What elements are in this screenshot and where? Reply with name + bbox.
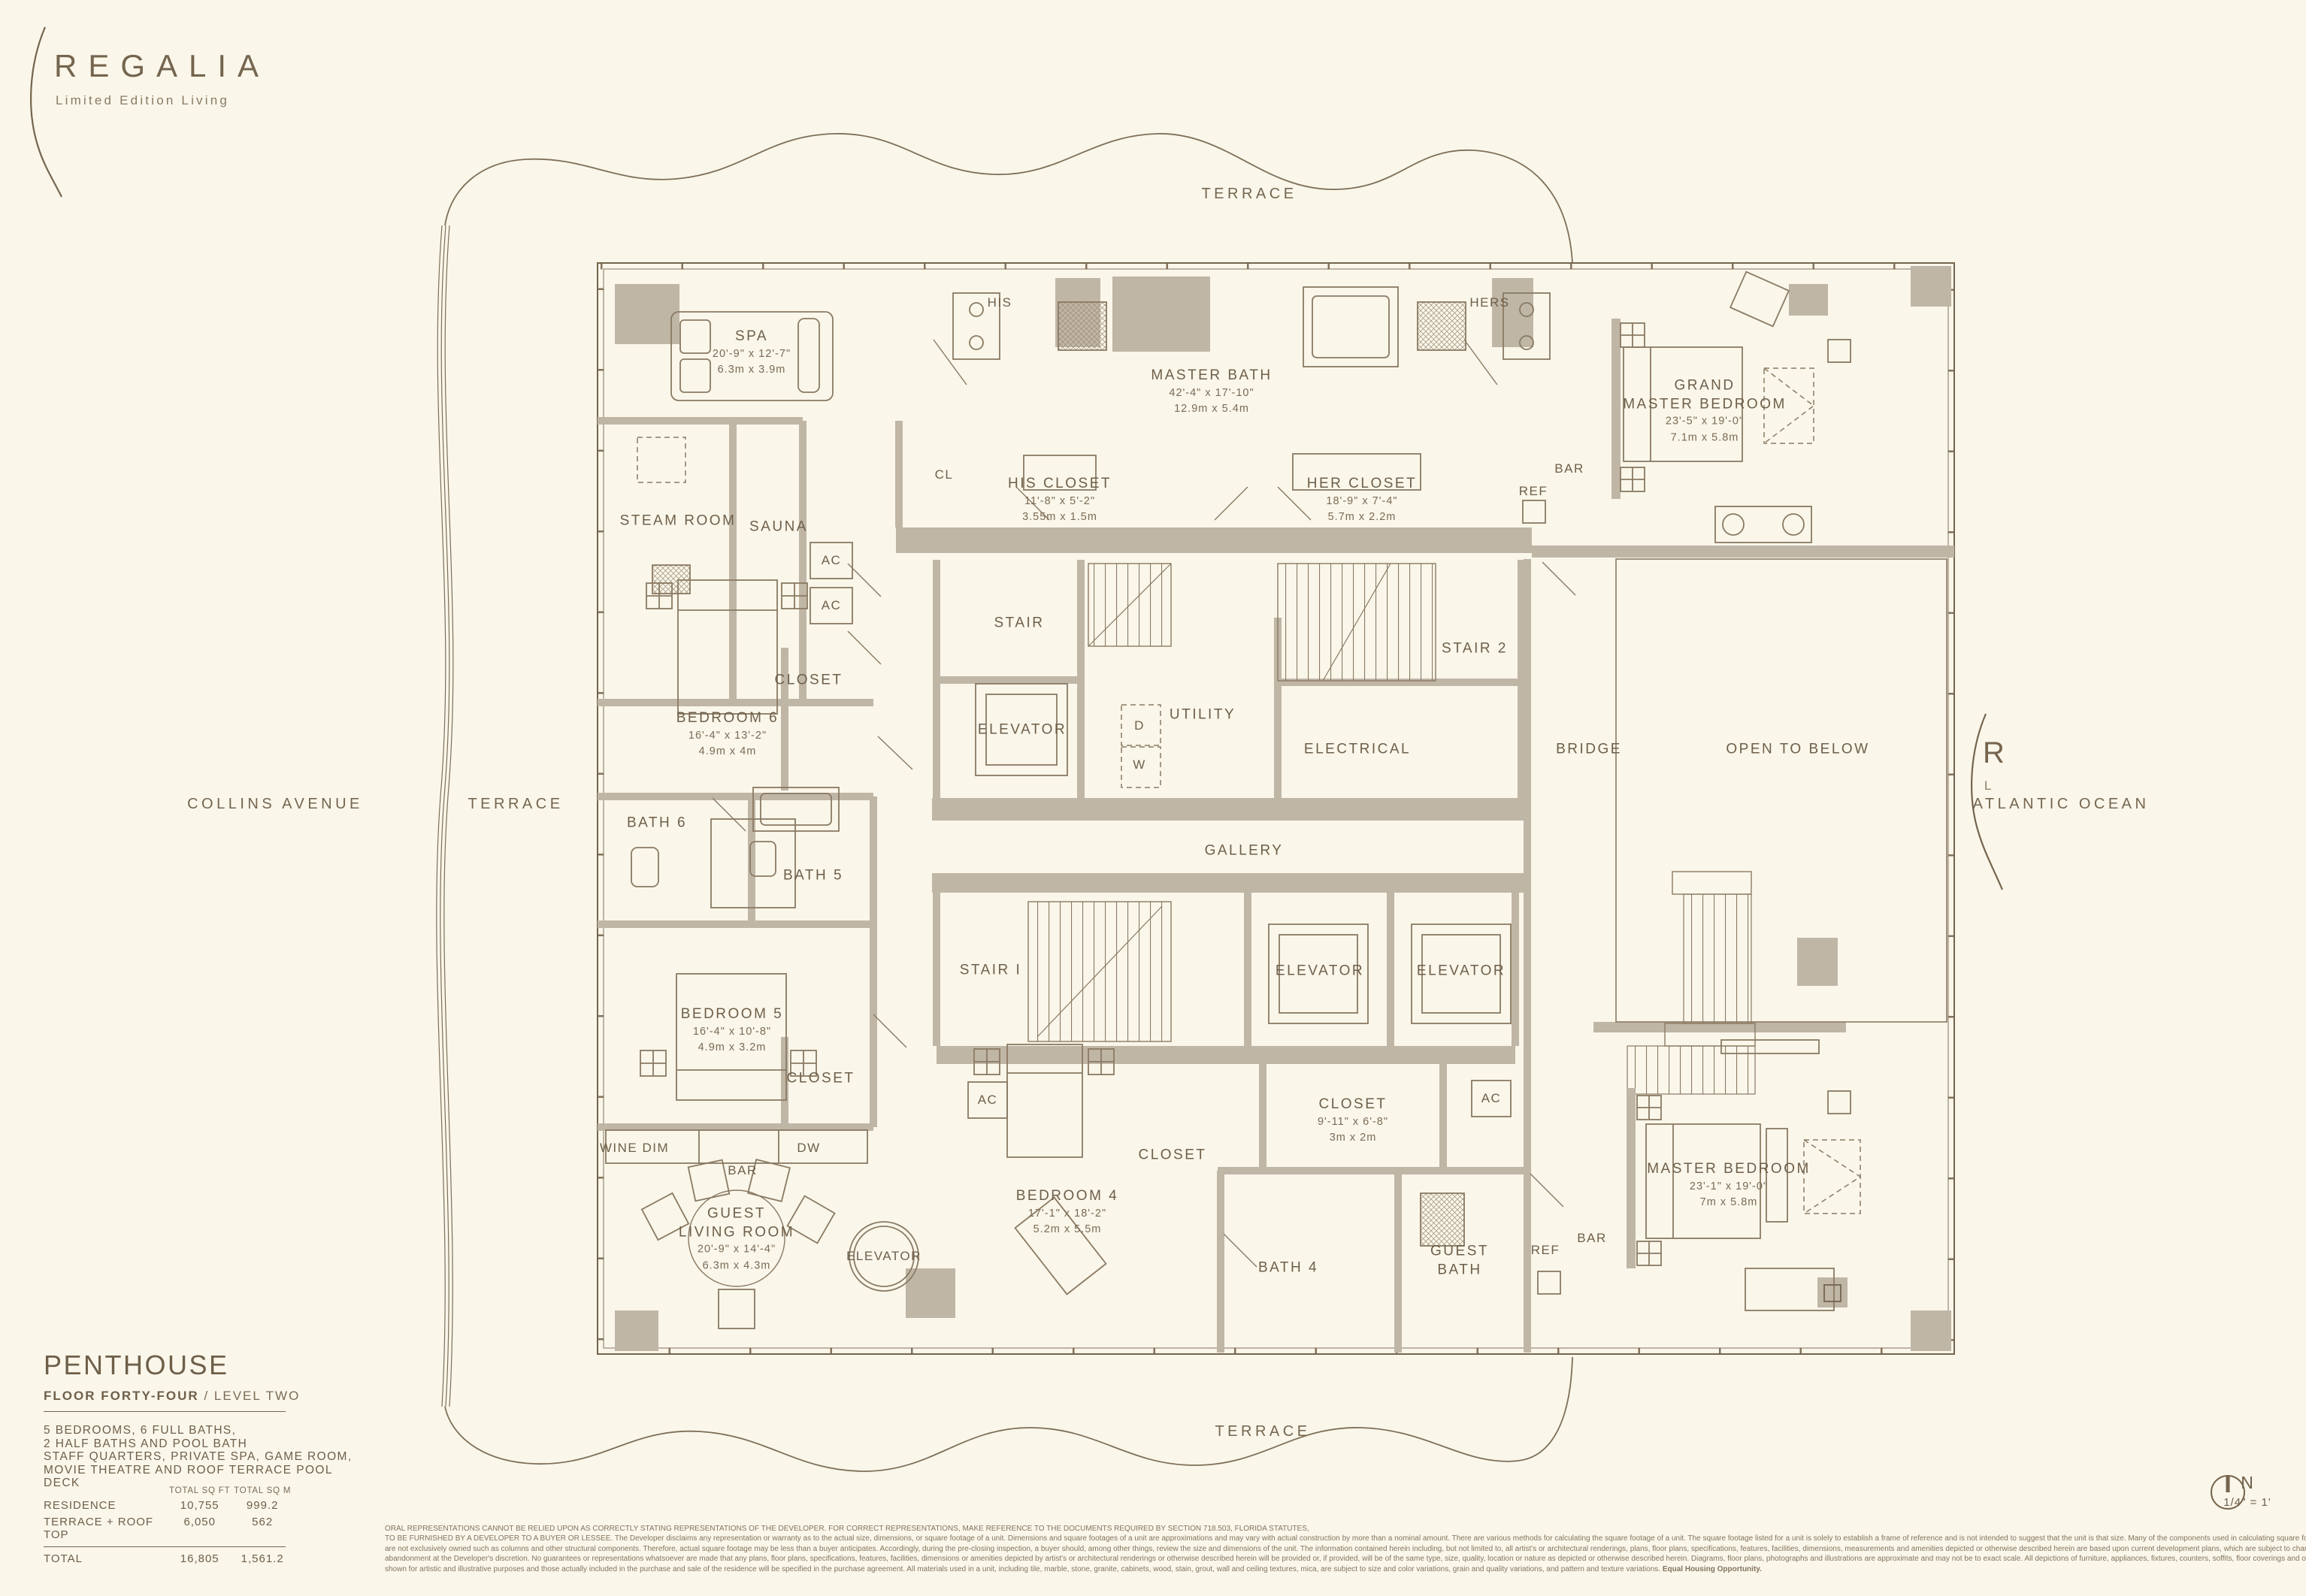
label-text: GUEST <box>1430 1242 1489 1261</box>
label-text: UTILITY <box>1170 706 1236 725</box>
label-dimension: 4.9m x 3.2m <box>681 1040 784 1056</box>
level-label: LEVEL TWO <box>214 1389 300 1403</box>
north-compass: N 1/4" = 1' <box>2208 1473 2286 1509</box>
label-master-bath: MASTER BATH42'-4" x 17'-10"12.9m x 5.4m <box>1151 367 1272 418</box>
brand-tagline-partial: L <box>1984 778 1993 793</box>
label-ac-2: AC <box>822 597 842 614</box>
label-dimension: 7m x 5.8m <box>1647 1195 1811 1211</box>
label-dimension: 4.9m x 4m <box>676 744 779 760</box>
label-guest-living-room: GUESTLIVING ROOM20'-9" x 14'-4"6.3m x 4.… <box>679 1205 794 1275</box>
brand-logo: REGALIA Limited Edition Living <box>20 21 290 201</box>
label-dimension: 3.55m x 1.5m <box>1008 509 1112 526</box>
label-elevator-lower-1: ELEVATOR <box>1276 963 1364 981</box>
description-line: 5 BEDROOMS, 6 FULL BATHS, <box>44 1424 359 1437</box>
label-text: ELEVATOR <box>1417 963 1506 981</box>
unit-description: 5 BEDROOMS, 6 FULL BATHS, 2 HALF BATHS A… <box>44 1424 359 1490</box>
label-elevator-guest: ELEVATOR <box>846 1248 921 1265</box>
label-ac-1: AC <box>822 552 842 569</box>
label-text: REF <box>1531 1242 1560 1259</box>
label-dimension: 5.7m x 2.2m <box>1307 509 1417 526</box>
label-electrical: ELECTRICAL <box>1304 741 1411 760</box>
floor-label: FLOOR FORTY-FOUR <box>44 1389 199 1403</box>
label-text: HIS <box>988 295 1012 311</box>
label-dimension: 18'-9" x 7'-4" <box>1307 494 1417 510</box>
unit-info-block: PENTHOUSE FLOOR FORTY-FOUR / LEVEL TWO 5… <box>44 1350 359 1490</box>
label-his: HIS <box>988 295 1012 311</box>
label-text: MASTER BATH <box>1151 367 1272 385</box>
label-dimension: 7.1m x 5.8m <box>1623 431 1787 447</box>
label-text: CLOSET <box>786 1070 855 1089</box>
label-text: MASTER BEDROOM <box>1647 1160 1811 1179</box>
subtitle-separator: / <box>204 1389 209 1403</box>
label-wine-dim: WINE DIM <box>600 1140 669 1156</box>
label-dimension: 42'-4" x 17'-10" <box>1151 385 1272 402</box>
label-text: AC <box>978 1092 998 1108</box>
label-text: BATH 5 <box>783 867 843 886</box>
label-utility: UTILITY <box>1170 706 1236 725</box>
label-stair: STAIR <box>994 615 1044 633</box>
label-text: W <box>1133 757 1146 773</box>
equal-housing-note: Equal Housing Opportunity. <box>1663 1565 1762 1573</box>
label-text: STAIR <box>994 615 1044 633</box>
row-sqm: 562 <box>233 1516 292 1528</box>
disclaimer-line: ORAL REPRESENTATIONS CANNOT BE RELIED UP… <box>385 1524 1971 1534</box>
label-text: BAR <box>728 1162 757 1179</box>
header-total-sqm: TOTAL SQ M <box>233 1486 292 1495</box>
label-hers: HERS <box>1469 295 1509 311</box>
label-text: WINE DIM <box>600 1140 669 1156</box>
total-sqft: 16,805 <box>166 1552 233 1565</box>
table-total-row: TOTAL 16,805 1,561.2 <box>44 1552 292 1565</box>
disclaimer-line: are not exclusively owned such as column… <box>385 1544 1971 1554</box>
label-bar-west: BAR <box>728 1162 757 1179</box>
label-text: MASTER BEDROOM <box>1623 395 1787 414</box>
label-dimension: 23'-5" x 19'-0" <box>1623 414 1787 431</box>
label-text: HIS CLOSET <box>1008 475 1112 494</box>
label-text: ELEVATOR <box>1276 963 1364 981</box>
label-dw: DW <box>797 1140 820 1156</box>
total-sqm: 1,561.2 <box>233 1552 292 1565</box>
brand-tagline: Limited Edition Living <box>56 93 229 108</box>
label-dimension: 16'-4" x 10'-8" <box>681 1024 784 1041</box>
elevators <box>849 684 1511 1291</box>
row-sqft: 10,755 <box>166 1499 233 1512</box>
label-dimension: 17'-1" x 18'-2" <box>1016 1206 1119 1223</box>
row-sqm: 999.2 <box>233 1499 292 1512</box>
label-text: D <box>1134 718 1145 734</box>
label-text: BEDROOM 5 <box>681 1005 784 1024</box>
label-dryer: D <box>1134 718 1145 734</box>
label-closet-guest: CLOSET9'-11" x 6'-8"3m x 2m <box>1318 1096 1388 1147</box>
row-label: RESIDENCE <box>44 1499 166 1512</box>
description-line: 2 HALF BATHS AND POOL BATH <box>44 1437 359 1451</box>
label-collins-avenue: COLLINS AVENUE <box>187 794 363 814</box>
label-text: GRAND <box>1623 377 1787 396</box>
label-ac-4: AC <box>1481 1090 1502 1107</box>
label-text: ELECTRICAL <box>1304 741 1411 760</box>
table-header-row: TOTAL SQ FT TOTAL SQ M <box>44 1486 292 1495</box>
label-bath-5: BATH 5 <box>783 867 843 886</box>
disclaimer-line: TO BE FURNISHED BY A DEVELOPER TO A BUYE… <box>385 1534 1971 1543</box>
label-text: BRIDGE <box>1556 741 1622 760</box>
label-bridge: BRIDGE <box>1556 741 1622 760</box>
label-gallery: GALLERY <box>1205 842 1284 861</box>
info-divider <box>44 1411 286 1412</box>
legal-disclaimer: ORAL REPRESENTATIONS CANNOT BE RELIED UP… <box>385 1524 1971 1574</box>
row-sqft: 6,050 <box>166 1516 233 1528</box>
label-bar-master: BAR <box>1577 1230 1606 1247</box>
label-text: TERRACE <box>1215 1422 1310 1441</box>
floorplan-sheet: TERRACECOLLINS AVENUETERRACEATLANTIC OCE… <box>0 0 2306 1596</box>
label-text: STEAM ROOM <box>620 512 737 531</box>
label-text: OPEN TO BELOW <box>1726 741 1869 760</box>
label-text: CLOSET <box>774 672 843 691</box>
label-dimension: 6.3m x 3.9m <box>713 362 791 379</box>
label-text: GALLERY <box>1205 842 1284 861</box>
open-to-below-void <box>1616 559 1947 1094</box>
label-steam-room: STEAM ROOM <box>620 512 737 531</box>
label-text: SPA <box>713 328 791 346</box>
compass-icon <box>2208 1473 2247 1512</box>
label-guest-bath: GUESTBATH <box>1430 1242 1489 1279</box>
label-sauna: SAUNA <box>749 518 808 537</box>
label-text: AC <box>1481 1090 1502 1107</box>
label-terrace-left: TERRACE <box>468 794 563 814</box>
label-dimension: 20'-9" x 12'-7" <box>713 346 791 363</box>
label-washer: W <box>1133 757 1146 773</box>
label-bath-4: BATH 4 <box>1258 1259 1318 1278</box>
label-dimension: 9'-11" x 6'-8" <box>1318 1114 1388 1131</box>
label-text: ELEVATOR <box>846 1248 921 1265</box>
label-text: BEDROOM 6 <box>676 709 779 728</box>
label-text: ELEVATOR <box>978 721 1067 740</box>
brand-logo-partial: R L <box>1965 706 2085 902</box>
label-text: STAIR I <box>960 962 1022 981</box>
unit-title: PENTHOUSE <box>44 1350 359 1381</box>
label-text: AC <box>822 552 842 569</box>
area-table: TOTAL SQ FT TOTAL SQ M RESIDENCE 10,755 … <box>44 1486 292 1565</box>
label-text: REF <box>1519 483 1548 500</box>
label-cl: CL <box>935 467 954 483</box>
label-his-closet: HIS CLOSET11'-8" x 5'-2"3.55m x 1.5m <box>1008 475 1112 526</box>
label-text: HERS <box>1469 295 1509 311</box>
label-text: TERRACE <box>1201 184 1297 204</box>
label-elevator-core: ELEVATOR <box>978 721 1067 740</box>
label-ac-3: AC <box>978 1092 998 1108</box>
disclaimer-line: shown for artistic and illustrative purp… <box>385 1564 1971 1574</box>
header-total-sqft: TOTAL SQ FT <box>166 1486 233 1495</box>
logo-curve-right <box>1965 706 2010 902</box>
table-row: RESIDENCE 10,755 999.2 <box>44 1499 292 1512</box>
brand-name-partial: R <box>1983 736 2016 770</box>
label-text: BAR <box>1554 461 1584 477</box>
description-line: STAFF QUARTERS, PRIVATE SPA, GAME ROOM, <box>44 1450 359 1464</box>
label-text: DW <box>797 1140 820 1156</box>
label-dimension: 12.9m x 5.4m <box>1151 401 1272 418</box>
label-closet-bedroom4: CLOSET <box>1138 1147 1206 1165</box>
label-text: HER CLOSET <box>1307 475 1417 494</box>
disclaimer-line: abandonment at the Developer's discretio… <box>385 1554 1971 1564</box>
label-ref-master: REF <box>1531 1242 1560 1259</box>
table-total-divider <box>44 1546 286 1547</box>
label-text: SAUNA <box>749 518 808 537</box>
label-bath-6: BATH 6 <box>627 815 687 833</box>
label-bedroom-5: BEDROOM 516'-4" x 10'-8"4.9m x 3.2m <box>681 1005 784 1056</box>
label-text: COLLINS AVENUE <box>187 794 363 814</box>
row-label: TERRACE + ROOF TOP <box>44 1516 166 1541</box>
label-dimension: 16'-4" x 13'-2" <box>676 728 779 745</box>
label-dimension: 5.2m x 5.5m <box>1016 1222 1119 1238</box>
label-text: CL <box>935 467 954 483</box>
label-master-bedroom: MASTER BEDROOM23'-1" x 19'-0"7m x 5.8m <box>1647 1160 1811 1211</box>
label-terrace-bottom: TERRACE <box>1215 1422 1310 1441</box>
label-text: BATH <box>1430 1261 1489 1280</box>
label-bar-grand: BAR <box>1554 461 1584 477</box>
label-dimension: 11'-8" x 5'-2" <box>1008 494 1112 510</box>
label-her-closet: HER CLOSET18'-9" x 7'-4"5.7m x 2.2m <box>1307 475 1417 526</box>
label-text: GUEST <box>679 1205 794 1224</box>
table-row: TERRACE + ROOF TOP 6,050 562 <box>44 1516 292 1541</box>
label-stair-1: STAIR I <box>960 962 1022 981</box>
label-text: CLOSET <box>1138 1147 1206 1165</box>
label-stair-2: STAIR 2 <box>1442 640 1508 659</box>
label-dimension: 23'-1" x 19'-0" <box>1647 1179 1811 1195</box>
label-closet-bedroom6: CLOSET <box>774 672 843 691</box>
label-text: BATH 6 <box>627 815 687 833</box>
label-dimension: 3m x 2m <box>1318 1130 1388 1147</box>
total-label: TOTAL <box>44 1552 166 1565</box>
label-text: AC <box>822 597 842 614</box>
label-terrace-top: TERRACE <box>1201 184 1297 204</box>
label-closet-bedroom5: CLOSET <box>786 1070 855 1089</box>
label-text: STAIR 2 <box>1442 640 1508 659</box>
label-dimension: 20'-9" x 14'-4" <box>679 1242 794 1259</box>
label-ref-grand: REF <box>1519 483 1548 500</box>
label-open-to-below: OPEN TO BELOW <box>1726 741 1869 760</box>
label-dimension: 6.3m x 4.3m <box>679 1259 794 1275</box>
brand-name: REGALIA <box>54 48 270 84</box>
label-text: BEDROOM 4 <box>1016 1187 1119 1206</box>
label-text: TERRACE <box>468 794 563 814</box>
unit-subtitle: FLOOR FORTY-FOUR / LEVEL TWO <box>44 1389 359 1404</box>
label-bedroom-4: BEDROOM 417'-1" x 18'-2"5.2m x 5.5m <box>1016 1187 1119 1238</box>
label-grand-master-bedroom: GRANDMASTER BEDROOM23'-5" x 19'-0"7.1m x… <box>1623 377 1787 447</box>
label-elevator-lower-2: ELEVATOR <box>1417 963 1506 981</box>
label-bedroom-6: BEDROOM 616'-4" x 13'-2"4.9m x 4m <box>676 709 779 760</box>
label-text: LIVING ROOM <box>679 1223 794 1242</box>
label-text: CLOSET <box>1318 1096 1388 1114</box>
label-text: BAR <box>1577 1230 1606 1247</box>
label-spa: SPA20'-9" x 12'-7"6.3m x 3.9m <box>713 328 791 379</box>
label-text: BATH 4 <box>1258 1259 1318 1278</box>
